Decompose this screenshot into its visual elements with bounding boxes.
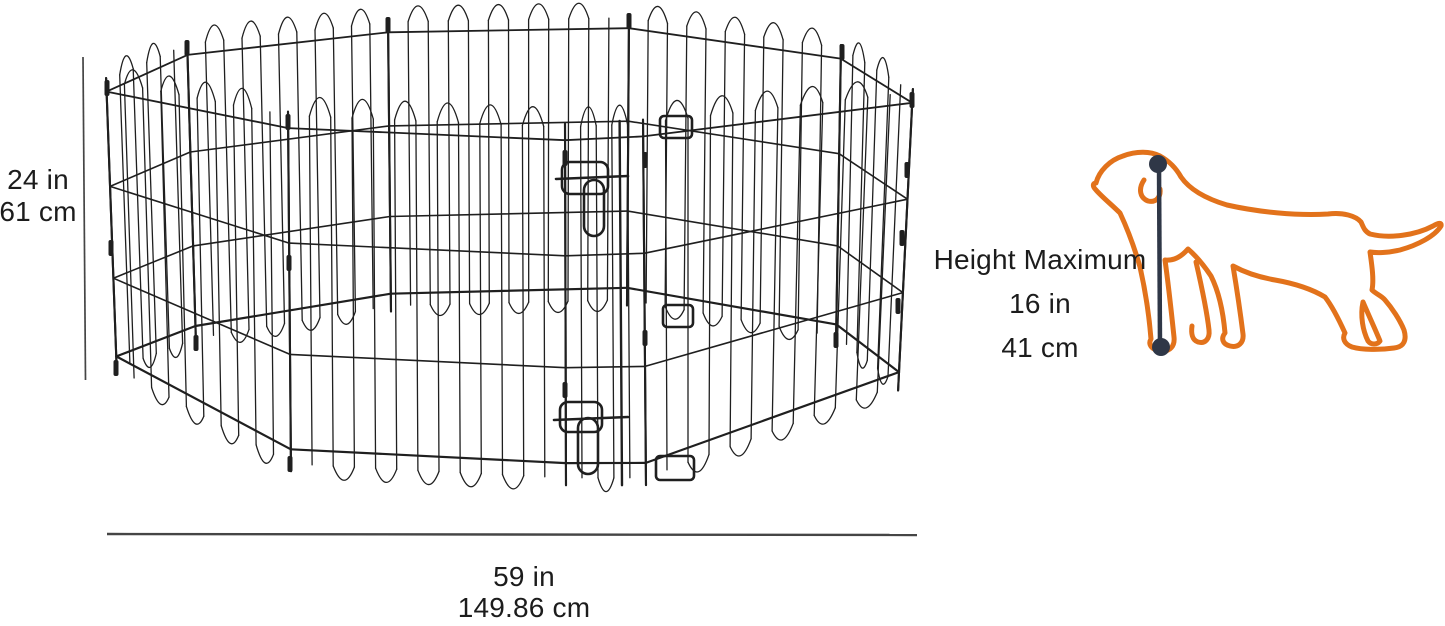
wire-pen-drawing [106,3,913,491]
dog-height-label: Height Maximum 16 in 41 cm [915,238,1165,370]
diagram-canvas [0,0,1445,626]
pen-width-label: 59 in 149.86 cm [414,561,634,623]
height-dimension-line [83,57,86,380]
measure-top-dot [1149,155,1167,173]
dog-height-cm: 41 cm [915,326,1165,370]
product-dimension-diagram: 24 in 61 cm 59 in 149.86 cm Height Maxim… [0,0,1445,626]
width-dimension-line [107,534,917,535]
pen-height-cm: 61 cm [0,196,80,228]
door-latch-hardware [554,116,694,480]
dog-height-inches: 16 in [915,282,1165,326]
dog-height-title: Height Maximum [915,238,1165,282]
pen-height-inches: 24 in [0,164,80,196]
pen-height-label: 24 in 61 cm [0,164,80,228]
pen-width-inches: 59 in [414,561,634,592]
pen-width-cm: 149.86 cm [414,592,634,623]
